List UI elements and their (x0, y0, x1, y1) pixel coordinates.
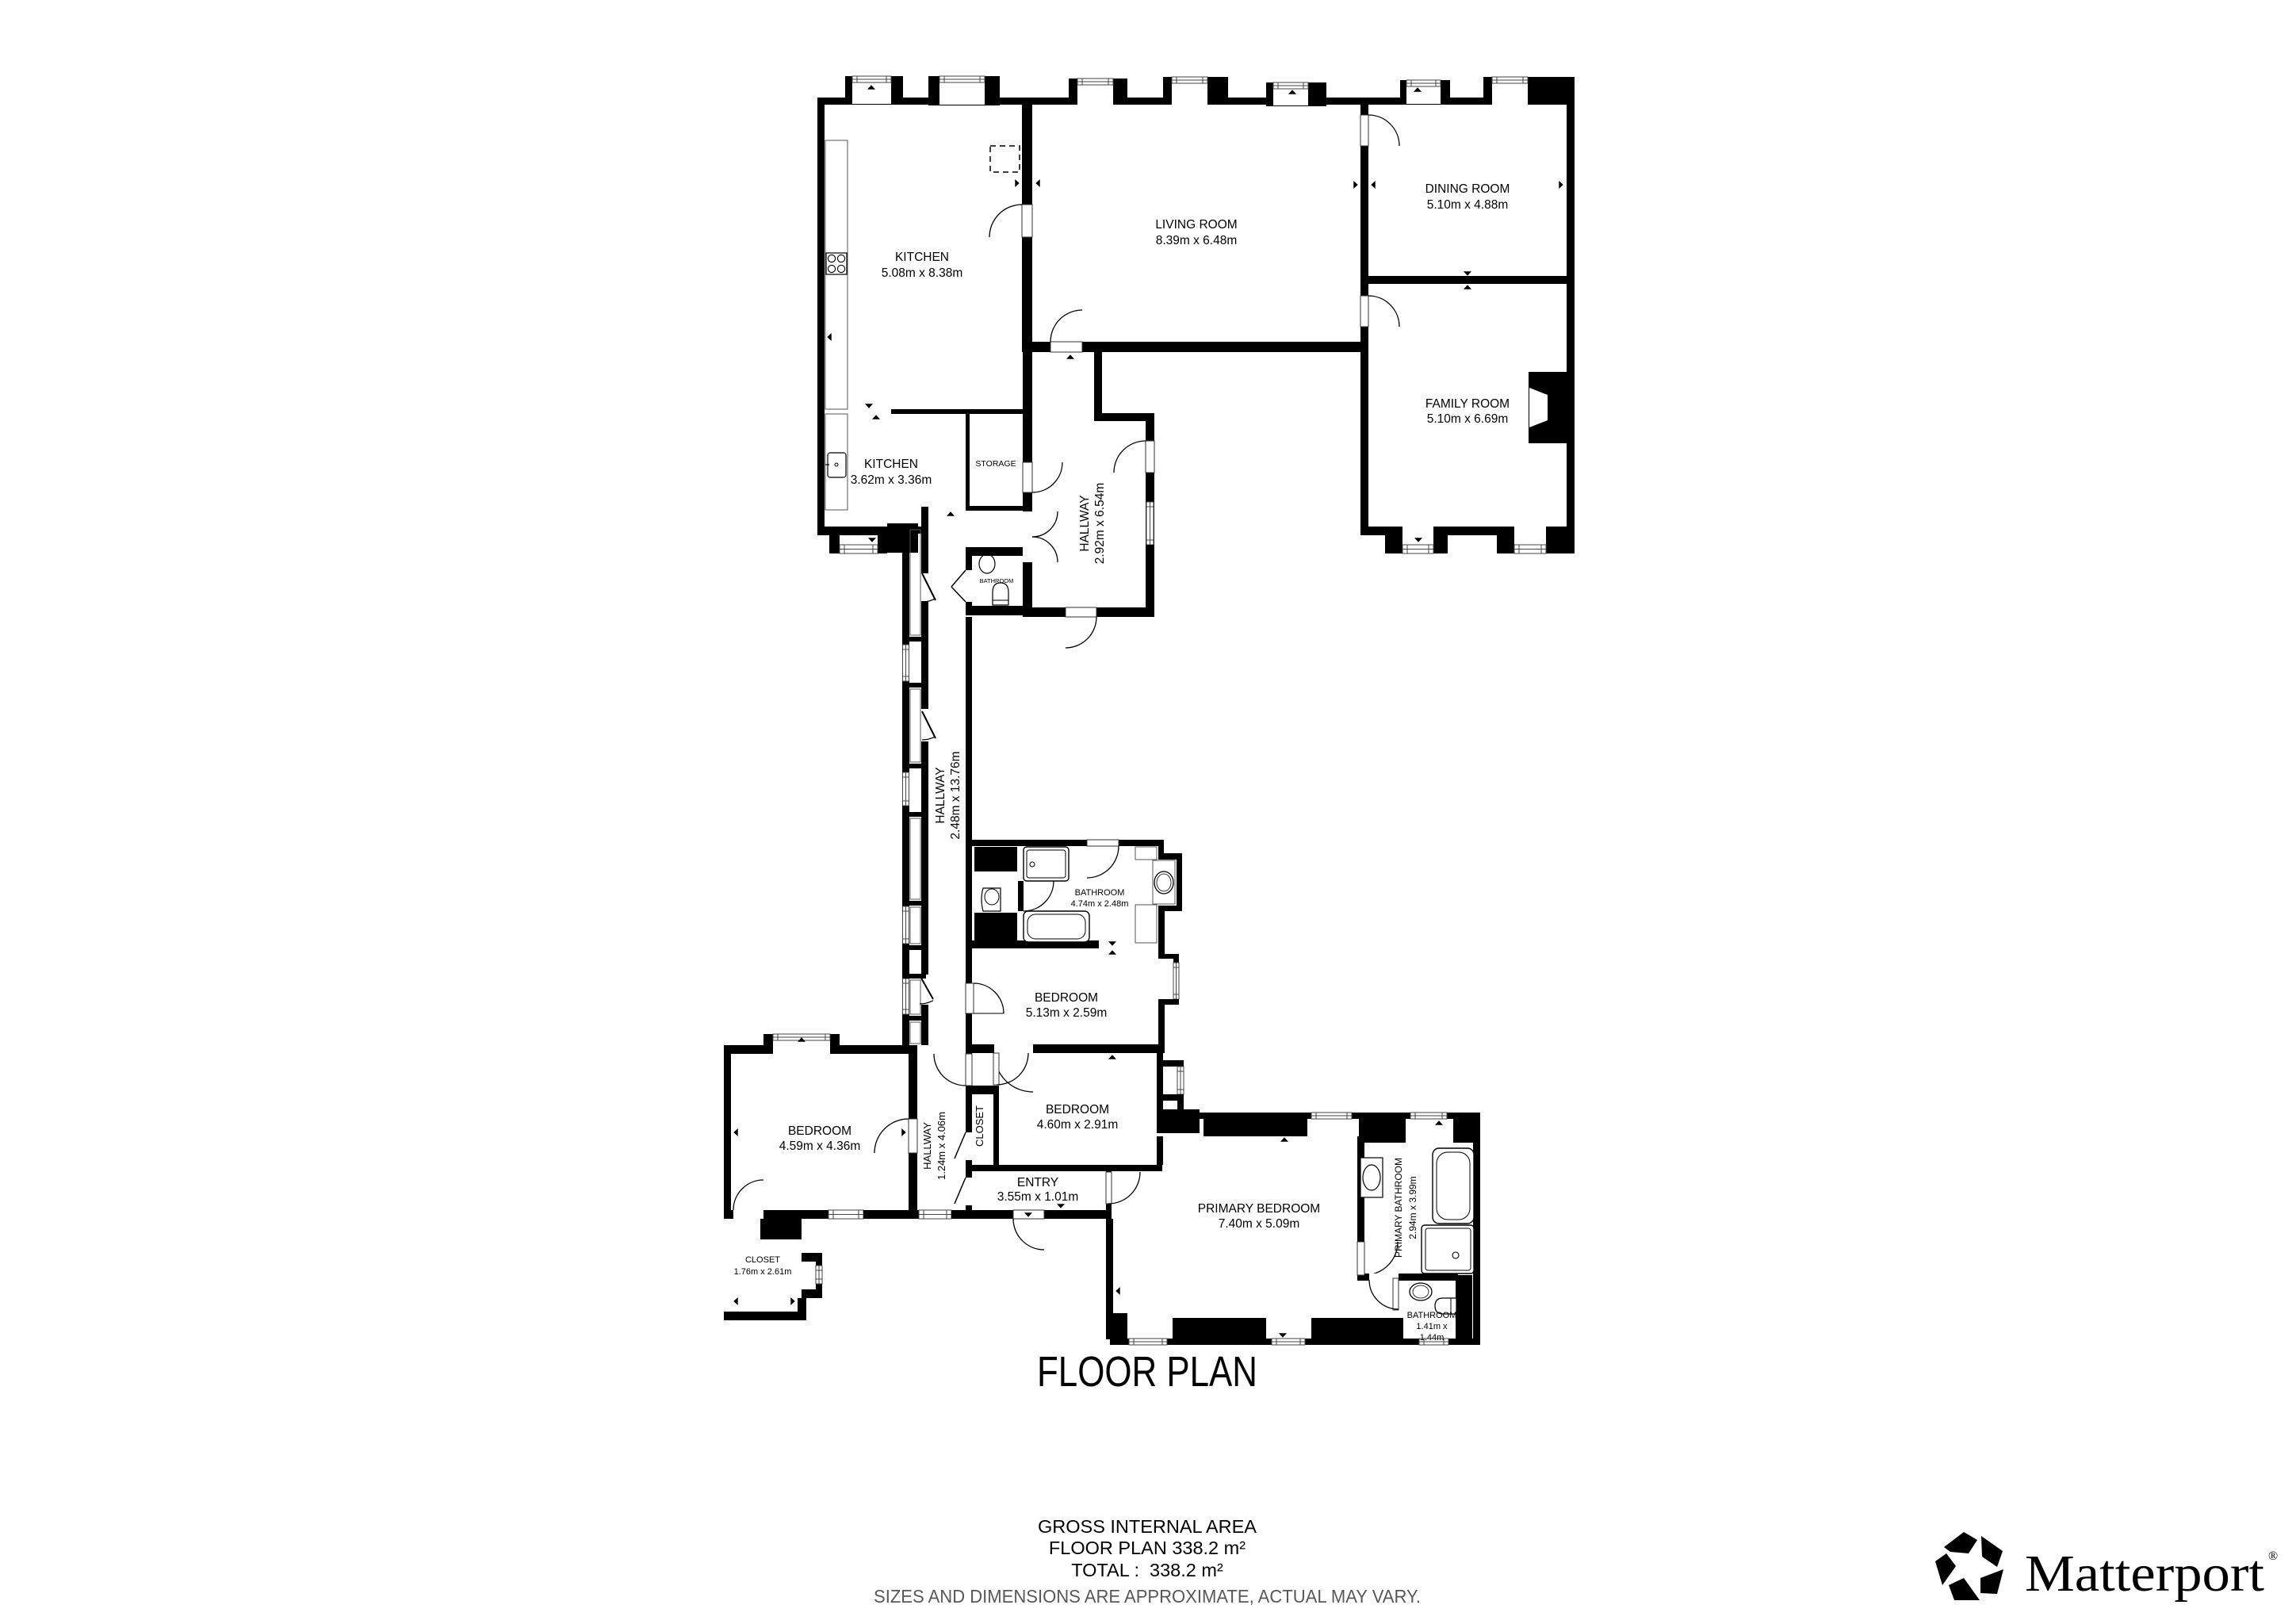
svg-text:GROSS INTERNAL AREA: GROSS INTERNAL AREA (1038, 1516, 1257, 1537)
svg-text:ENTRY: ENTRY (1017, 1176, 1058, 1189)
svg-text:1.24m x 4.06m: 1.24m x 4.06m (936, 1112, 947, 1180)
svg-text:HALLWAY: HALLWAY (934, 767, 947, 823)
svg-text:3.55m x 1.01m: 3.55m x 1.01m (997, 1190, 1079, 1204)
svg-text:HALLWAY: HALLWAY (1078, 495, 1092, 551)
svg-text:FLOOR PLAN 338.2 m²: FLOOR PLAN 338.2 m² (1049, 1538, 1246, 1558)
svg-text:SIZES AND DIMENSIONS ARE APPRO: SIZES AND DIMENSIONS ARE APPROXIMATE, AC… (874, 1586, 1421, 1607)
svg-text:Matterport: Matterport (2025, 1545, 2264, 1603)
svg-text:5.13m x 2.59m: 5.13m x 2.59m (1026, 1006, 1108, 1020)
svg-text:CLOSET: CLOSET (745, 1255, 780, 1265)
svg-text:2.92m x 6.54m: 2.92m x 6.54m (1093, 483, 1107, 565)
svg-text:CLOSET: CLOSET (974, 1105, 985, 1147)
svg-text:BEDROOM: BEDROOM (1046, 1103, 1109, 1116)
svg-text:®: ® (2268, 1549, 2278, 1563)
svg-text:5.10m x 4.88m: 5.10m x 4.88m (1427, 198, 1509, 212)
svg-text:TOTAL : 338.2 m²: TOTAL : 338.2 m² (1071, 1560, 1223, 1580)
svg-text:DINING ROOM: DINING ROOM (1425, 182, 1510, 196)
svg-text:3.62m x 3.36m: 3.62m x 3.36m (851, 473, 932, 487)
svg-text:BEDROOM: BEDROOM (788, 1124, 851, 1138)
svg-text:1.76m x 2.61m: 1.76m x 2.61m (734, 1267, 792, 1277)
svg-text:BATHROOM: BATHROOM (1075, 888, 1125, 898)
svg-text:2.48m x 13.76m: 2.48m x 13.76m (949, 751, 962, 839)
svg-text:BATHROOM: BATHROOM (1407, 1311, 1457, 1320)
svg-text:LIVING ROOM: LIVING ROOM (1155, 218, 1237, 232)
svg-text:FAMILY ROOM: FAMILY ROOM (1425, 397, 1510, 411)
svg-text:4.60m x 2.91m: 4.60m x 2.91m (1037, 1118, 1119, 1132)
svg-text:2.94m x 3.99m: 2.94m x 3.99m (1407, 1176, 1418, 1239)
svg-text:BEDROOM: BEDROOM (1035, 991, 1098, 1005)
svg-text:KITCHEN: KITCHEN (895, 251, 949, 264)
svg-text:5.08m x 8.38m: 5.08m x 8.38m (882, 266, 963, 280)
svg-text:HALLWAY: HALLWAY (921, 1122, 933, 1170)
svg-text:4.74m x 2.48m: 4.74m x 2.48m (1071, 899, 1129, 909)
svg-text:PRIMARY BATHROOM: PRIMARY BATHROOM (1393, 1158, 1404, 1258)
svg-text:BATHROOM: BATHROOM (980, 577, 1014, 584)
svg-text:8.39m x 6.48m: 8.39m x 6.48m (1156, 234, 1238, 247)
svg-text:5.10m x 6.69m: 5.10m x 6.69m (1427, 412, 1509, 426)
svg-text:PRIMARY BEDROOM: PRIMARY BEDROOM (1198, 1202, 1320, 1216)
svg-text:4.59m x 4.36m: 4.59m x 4.36m (779, 1139, 861, 1153)
svg-text:1.41m x: 1.41m x (1416, 1322, 1448, 1331)
svg-text:STORAGE: STORAGE (975, 459, 1016, 469)
svg-text:FLOOR PLAN: FLOOR PLAN (1037, 1348, 1257, 1396)
svg-text:KITCHEN: KITCHEN (864, 458, 918, 471)
svg-text:7.40m x 5.09m: 7.40m x 5.09m (1219, 1217, 1300, 1231)
svg-text:1.44m: 1.44m (1420, 1333, 1445, 1342)
